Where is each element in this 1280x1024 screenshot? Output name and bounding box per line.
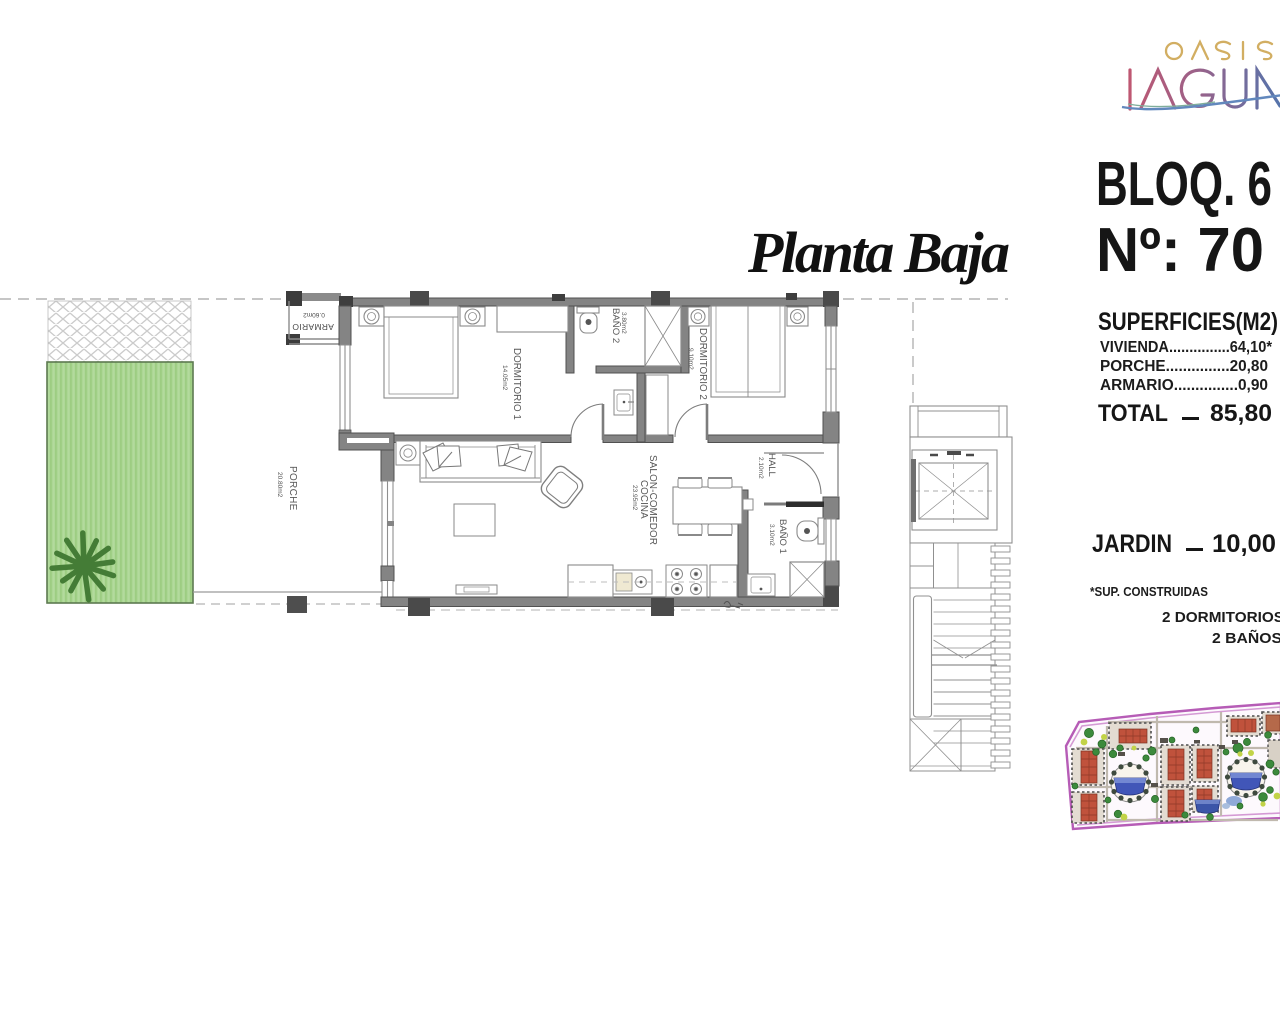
svg-text:Nº: 70: Nº: 70 (1096, 216, 1264, 285)
svg-text:2 DORMITORIOS: 2 DORMITORIOS (1162, 609, 1280, 626)
svg-text:3.80m2: 3.80m2 (620, 312, 627, 334)
svg-text:ARMARIO...............0,90: ARMARIO...............0,90 (1100, 377, 1268, 394)
svg-text:BAÑO 2: BAÑO 2 (610, 308, 621, 343)
svg-text:BLOQ. 6: BLOQ. 6 (1096, 150, 1272, 219)
svg-text:*SUP. CONSTRUIDAS: *SUP. CONSTRUIDAS (1090, 585, 1208, 599)
svg-text:0.60m2: 0.60m2 (303, 311, 325, 318)
svg-text:HALL: HALL (766, 453, 777, 477)
svg-text:14.05m2: 14.05m2 (501, 365, 508, 391)
svg-text:10,00: 10,00 (1212, 530, 1276, 558)
svg-text:20.80m2: 20.80m2 (276, 472, 283, 498)
svg-text:9.10m2: 9.10m2 (687, 348, 694, 370)
svg-text:ARMARIO: ARMARIO (292, 322, 334, 332)
svg-text:COCINA: COCINA (638, 480, 649, 519)
svg-text:23.95m2: 23.95m2 (631, 485, 638, 511)
svg-text:TOTAL: TOTAL (1098, 400, 1168, 427)
svg-text:3.10m2: 3.10m2 (768, 524, 775, 546)
svg-text:DORMITORIO 2: DORMITORIO 2 (697, 328, 708, 400)
svg-text:85,80: 85,80 (1210, 400, 1272, 427)
svg-text:BAÑO 1: BAÑO 1 (777, 519, 788, 554)
svg-text:Planta Baja: Planta Baja (747, 220, 1010, 285)
svg-text:PORCHE: PORCHE (287, 466, 298, 511)
svg-text:2.10m2: 2.10m2 (757, 457, 764, 479)
svg-text:JARDIN: JARDIN (1092, 530, 1172, 558)
svg-text:VIVIENDA...............64,10*: VIVIENDA...............64,10* (1100, 339, 1273, 356)
svg-text:PORCHE...............20,80: PORCHE...............20,80 (1100, 358, 1268, 375)
svg-text:SUPERFICIES(M2): SUPERFICIES(M2) (1098, 308, 1278, 336)
svg-text:2 BAÑOS: 2 BAÑOS (1212, 629, 1280, 647)
svg-text:DORMITORIO 1: DORMITORIO 1 (511, 348, 522, 420)
